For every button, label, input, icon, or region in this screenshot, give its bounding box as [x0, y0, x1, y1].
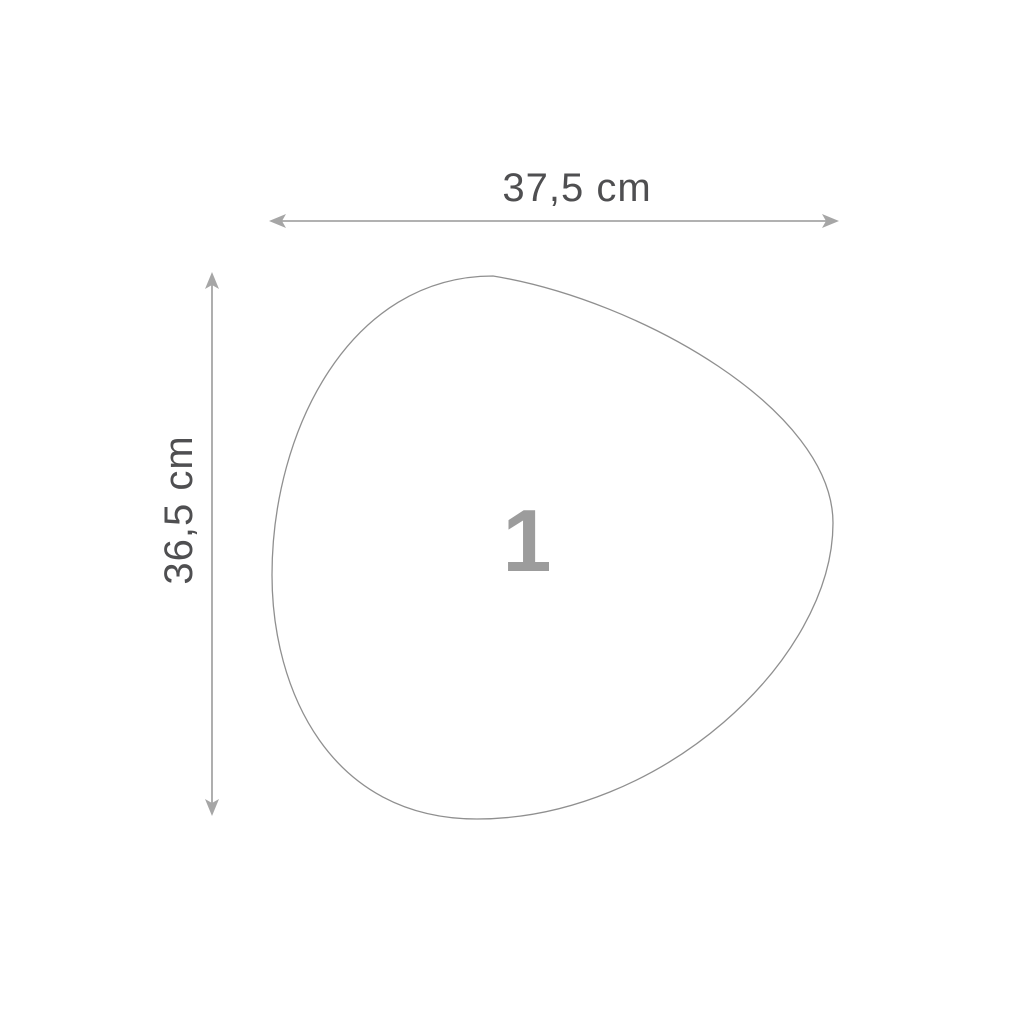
height-dimension-label: 36,5 cm	[159, 435, 199, 584]
height-dimension-arrow	[205, 272, 219, 816]
shape-outline	[272, 276, 833, 819]
dimension-diagram: 37,5 cm 36,5 cm 1	[0, 0, 1024, 1024]
width-dimension-label: 37,5 cm	[502, 168, 651, 208]
part-number-label: 1	[503, 497, 552, 585]
width-dimension-arrow	[269, 214, 839, 228]
